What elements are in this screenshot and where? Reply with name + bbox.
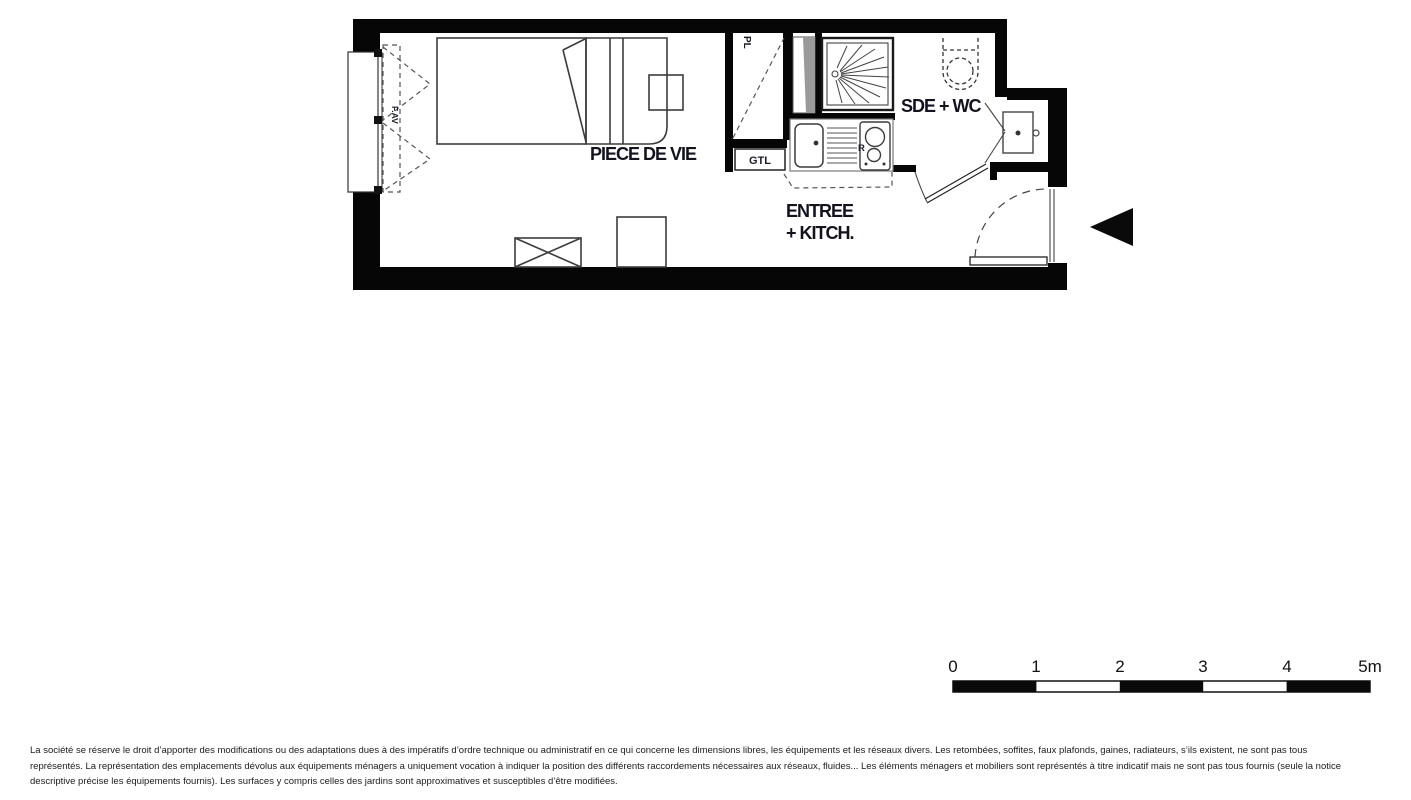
worktop-dashed [784, 172, 892, 188]
bathroom-label: SDE + WC [901, 96, 982, 116]
duct [793, 37, 815, 113]
entry-label-line1: ENTREE [786, 201, 854, 221]
entry-door [970, 189, 1054, 265]
window-handle [374, 49, 382, 57]
gtl-box: GTL [735, 149, 785, 170]
bed [437, 38, 587, 144]
sink-tap [814, 141, 819, 146]
gtl-label: GTL [749, 155, 771, 167]
washbasin-drain [1016, 131, 1021, 136]
walls [353, 19, 1067, 290]
floor-plan-drawing: F.AV PL GTL [0, 0, 1411, 800]
window-label: F.AV [390, 106, 400, 124]
washbasin-tap [1033, 130, 1039, 136]
fridge-label: R [858, 143, 865, 154]
scale-tick-2: 2 [1115, 657, 1124, 676]
shower [822, 38, 893, 110]
disclaimer: La société se réserve le droit d’apporte… [30, 743, 1405, 790]
scale-tick-1: 1 [1031, 657, 1040, 676]
disclaimer-line-1: La société se réserve le droit d’apporte… [30, 743, 1405, 759]
disclaimer-line-2: représentés. La représentation des empla… [30, 759, 1405, 775]
scale-tick-5: 5m [1358, 657, 1382, 676]
kitchenette: R [784, 119, 893, 188]
desk [586, 38, 667, 144]
casement-swing [383, 123, 430, 191]
window-handle [374, 116, 382, 124]
floor-plan-page: F.AV PL GTL [0, 0, 1411, 800]
scale-tick-4: 4 [1282, 657, 1291, 676]
window: F.AV [348, 45, 430, 194]
entry-door-leaf [970, 257, 1047, 265]
entry-door-swing [975, 189, 1047, 257]
entry-label-line2: + KITCH. [786, 223, 854, 243]
stool [617, 217, 666, 267]
window-handle [374, 186, 382, 194]
coffee-table [515, 238, 581, 267]
entrance-arrow-icon [1090, 208, 1133, 246]
closet: PL [733, 36, 784, 138]
chair [649, 75, 683, 110]
washbasin [985, 103, 1039, 163]
living-room-label: PIECE DE VIE [590, 144, 697, 164]
scale-tick-3: 3 [1198, 657, 1207, 676]
toilet [943, 38, 978, 90]
scale-bar: 0 1 2 3 4 5m [948, 657, 1382, 692]
scale-tick-0: 0 [948, 657, 957, 676]
closet-label: PL [741, 36, 752, 49]
bathroom-door [915, 164, 988, 203]
disclaimer-line-3: descriptive précise les équipements four… [30, 774, 1405, 790]
